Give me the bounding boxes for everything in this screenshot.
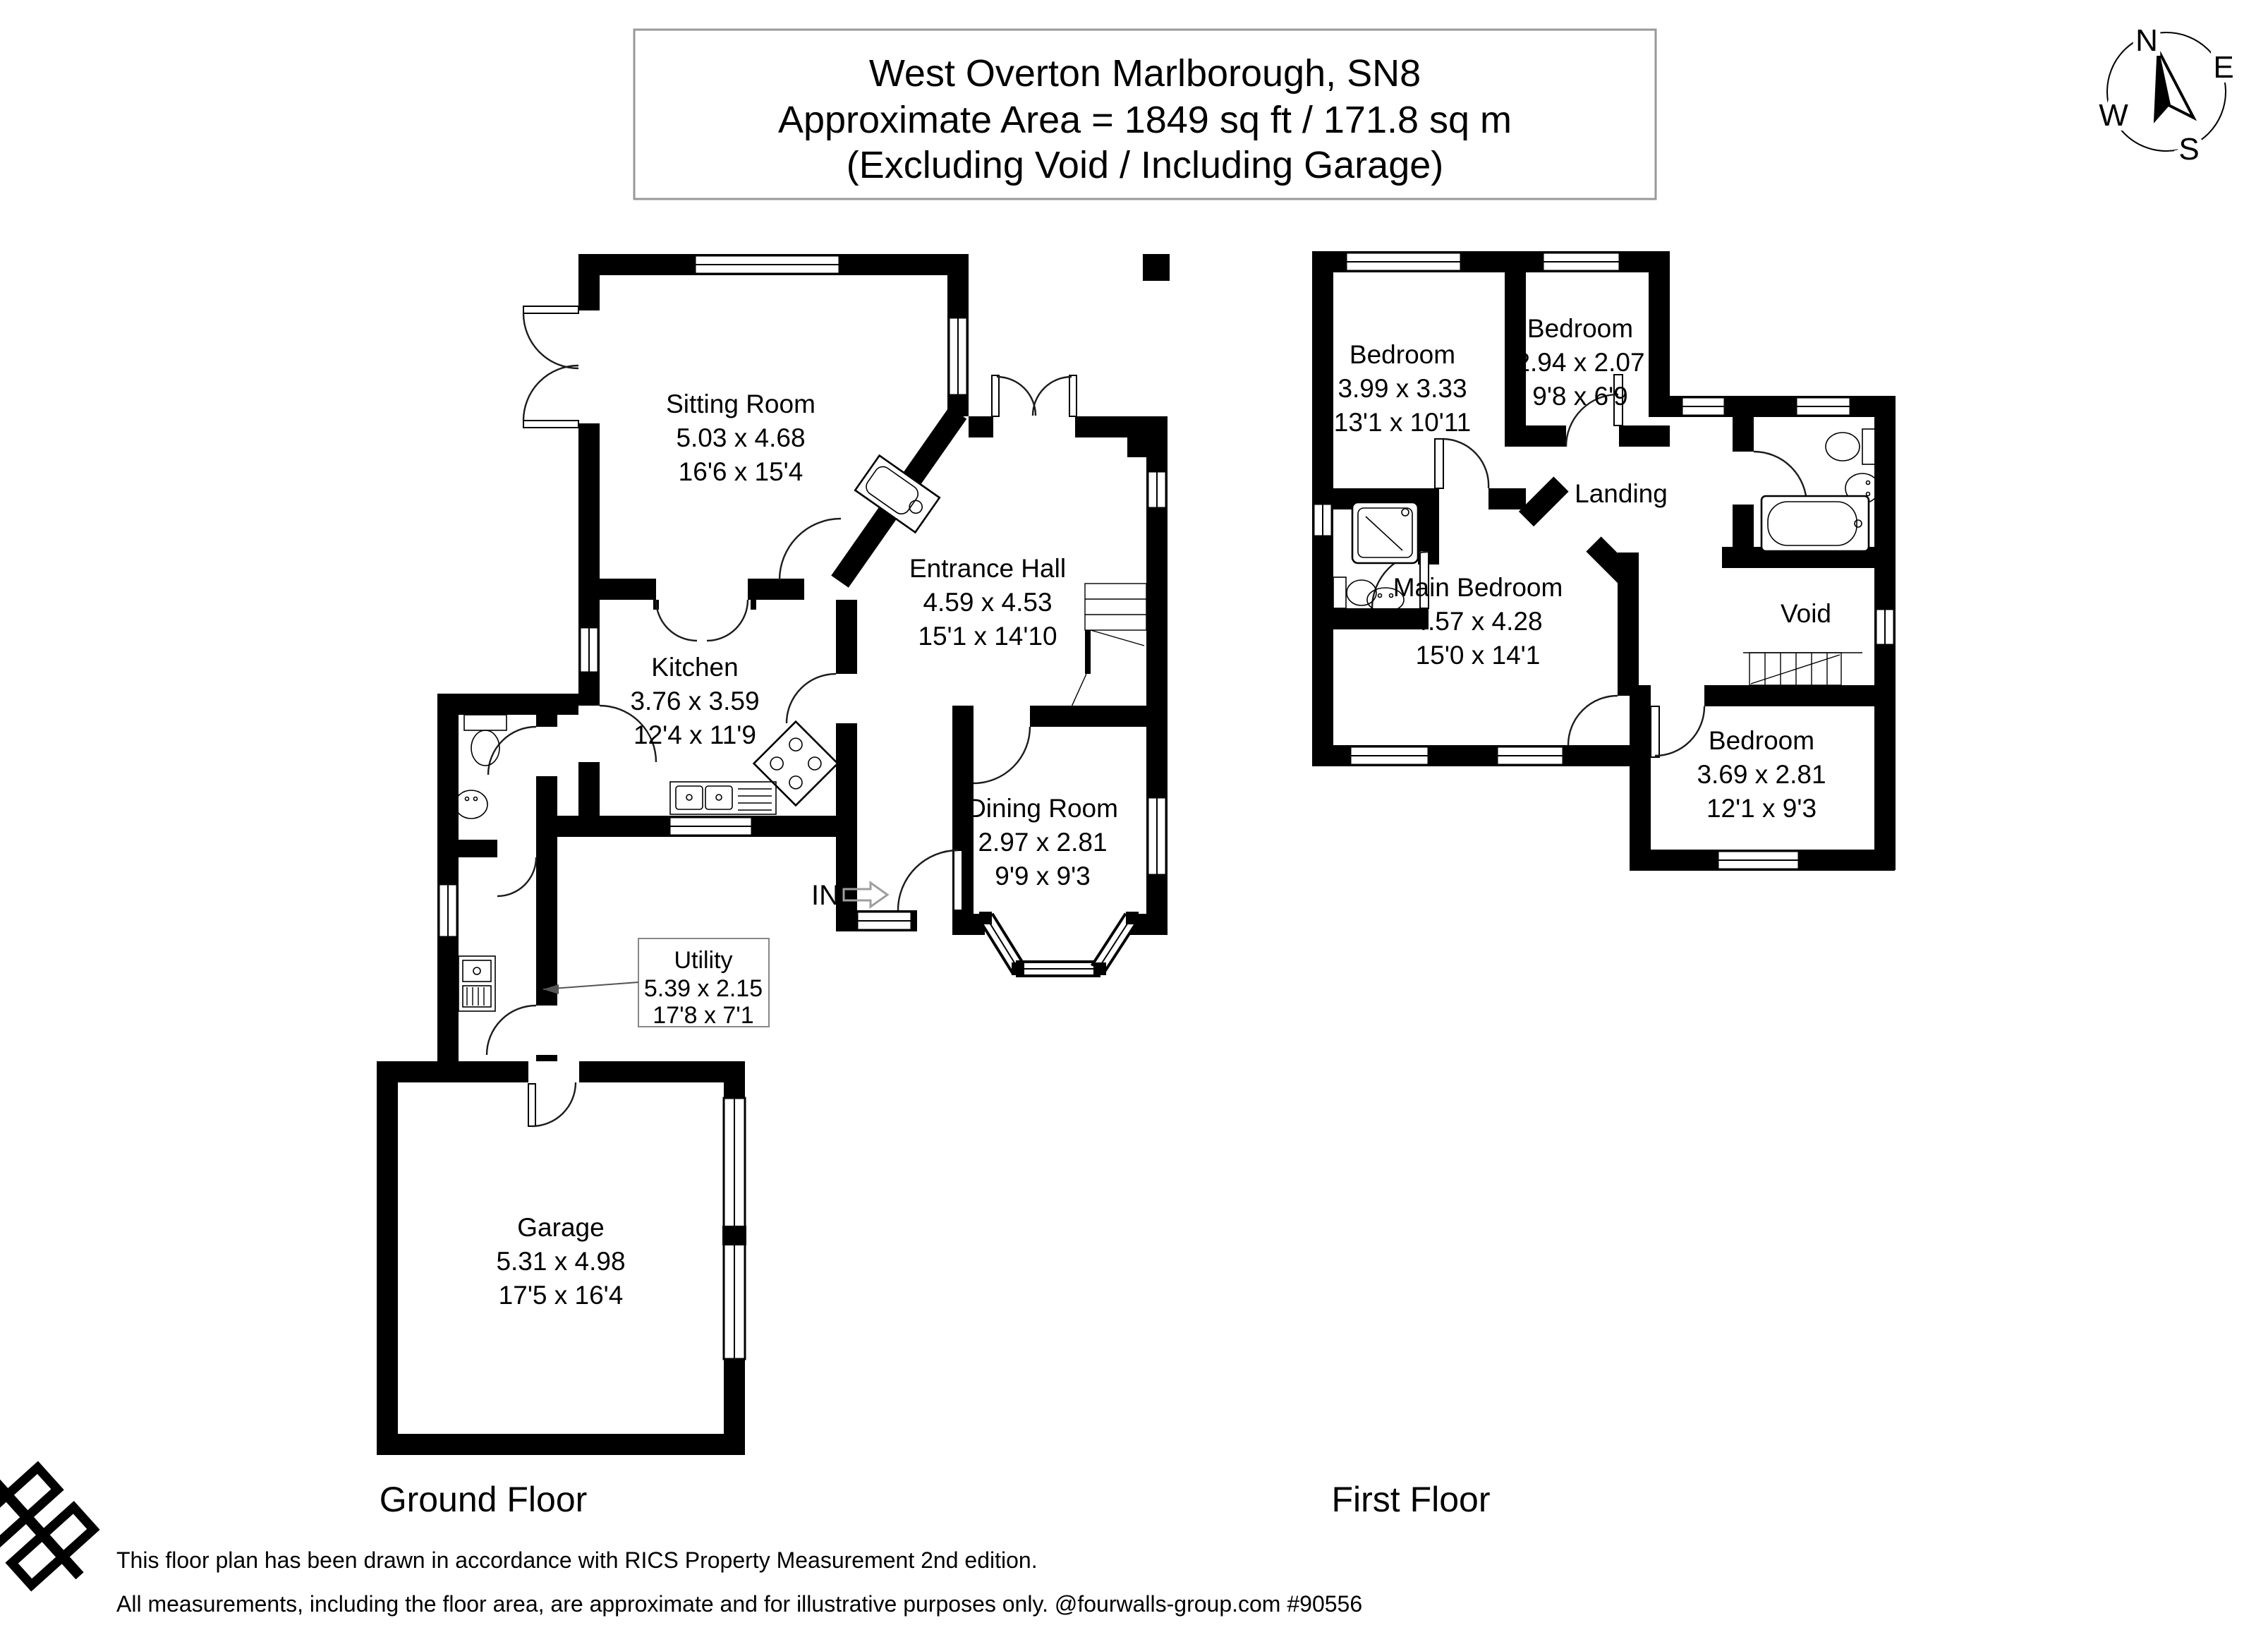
ground-floor-label: Ground Floor xyxy=(380,1480,588,1519)
room-imperial: 17'5 x 16'4 xyxy=(499,1281,624,1310)
room-label-main-bedroom: Main Bedroom 4.57 x 4.28 15'0 x 14'1 xyxy=(1393,573,1563,670)
title-note: (Excluding Void / Including Garage) xyxy=(847,144,1444,186)
window xyxy=(949,318,967,395)
compass-e: E xyxy=(2213,50,2233,85)
door-arc xyxy=(523,313,578,368)
window xyxy=(1346,253,1461,271)
room-name: Entrance Hall xyxy=(909,554,1066,583)
room-label-landing: Landing xyxy=(1575,479,1668,508)
door-arc xyxy=(523,366,578,421)
title-area: Approximate Area = 1849 sq ft / 171.8 sq… xyxy=(778,99,1512,141)
room-name: Kitchen xyxy=(651,653,738,682)
ground-floor-plan: Sitting Room 5.03 x 4.68 16'6 x 15'4 Ent… xyxy=(377,254,1170,1519)
shower-icon xyxy=(1352,502,1418,563)
room-label-entrance-hall: Entrance Hall 4.59 x 4.53 15'1 x 14'10 xyxy=(909,554,1066,651)
door-arc xyxy=(656,600,697,641)
room-metric: 5.39 x 2.15 xyxy=(644,975,763,1002)
room-metric: 3.76 x 3.59 xyxy=(630,687,759,716)
door-arc xyxy=(1655,706,1704,756)
door-arc xyxy=(497,857,536,896)
footer: This floor plan has been drawn in accord… xyxy=(0,1455,1362,1617)
door-arc xyxy=(1443,439,1488,488)
room-label-garage: Garage 5.31 x 4.98 17'5 x 16'4 xyxy=(496,1213,625,1310)
room-metric: 5.31 x 4.98 xyxy=(496,1247,625,1276)
entry-door-leaf xyxy=(1069,375,1077,416)
window xyxy=(1876,609,1894,645)
room-name: Dining Room xyxy=(967,794,1118,823)
in-label: IN xyxy=(811,880,839,911)
room-imperial: 12'1 x 9'3 xyxy=(1706,794,1817,823)
room-label-bedroom-1: Bedroom 3.99 x 3.33 13'1 x 10'11 xyxy=(1334,340,1472,437)
first-floor-label: First Floor xyxy=(1332,1480,1491,1519)
room-name: Main Bedroom xyxy=(1393,573,1563,602)
room-label-bedroom-3: Bedroom 3.69 x 2.81 12'1 x 9'3 xyxy=(1697,726,1826,823)
door-arc xyxy=(487,1006,536,1055)
title-box: West Overton Marlborough, SN8 Approximat… xyxy=(634,30,1656,199)
french-door-leaf xyxy=(523,306,578,313)
room-label-void: Void xyxy=(1781,599,1831,628)
compass: N E W S xyxy=(2099,23,2233,167)
room-label-bedroom-2: Bedroom 2.94 x 2.07 9'8 x 6'9 xyxy=(1515,314,1644,411)
room-imperial: 17'8 x 7'1 xyxy=(653,1002,753,1029)
staircase xyxy=(1069,584,1146,711)
basin-icon xyxy=(455,790,487,819)
door-leaf xyxy=(1651,706,1659,757)
hob-icon xyxy=(754,722,838,806)
room-imperial: 16'6 x 15'4 xyxy=(679,457,803,486)
room-imperial: 15'1 x 14'10 xyxy=(918,622,1057,651)
window xyxy=(1148,471,1166,508)
window xyxy=(857,912,911,930)
window xyxy=(439,884,457,937)
room-name: Bedroom xyxy=(1527,314,1633,343)
in-door-leaf xyxy=(954,850,962,910)
door-arc xyxy=(1033,377,1072,416)
door-arc xyxy=(532,1082,576,1126)
room-metric: 5.03 x 4.68 xyxy=(676,423,805,452)
room-label-kitchen: Kitchen 3.76 x 3.59 12'4 x 11'9 xyxy=(630,653,759,749)
room-name: Bedroom xyxy=(1350,340,1455,369)
window xyxy=(580,627,598,672)
room-name: Utility xyxy=(674,947,732,974)
window xyxy=(1350,747,1429,765)
fourwalls-logo-icon xyxy=(0,1455,111,1604)
compass-n: N xyxy=(2135,23,2158,58)
door-arc xyxy=(780,519,841,580)
window xyxy=(1796,397,1850,416)
toilet-icon xyxy=(1826,429,1881,464)
window xyxy=(1148,797,1166,875)
room-imperial: 9'8 x 6'9 xyxy=(1532,382,1628,411)
door-arc xyxy=(488,727,536,775)
room-metric: 3.99 x 3.33 xyxy=(1338,374,1467,403)
window xyxy=(1543,253,1620,271)
floorplan-canvas: West Overton Marlborough, SN8 Approximat… xyxy=(0,0,2268,1630)
room-metric: 3.69 x 2.81 xyxy=(1697,760,1826,789)
door-arc xyxy=(974,727,1030,783)
room-metric: 2.97 x 2.81 xyxy=(978,828,1107,857)
door-arc xyxy=(787,674,836,723)
toilet-icon xyxy=(464,715,507,766)
entry-door-leaf xyxy=(992,375,999,416)
bay-window xyxy=(979,912,1139,975)
room-imperial: 9'9 x 9'3 xyxy=(995,862,1091,891)
room-label-sitting-room: Sitting Room 5.03 x 4.68 16'6 x 15'4 xyxy=(666,390,815,486)
bathtub-icon xyxy=(1761,496,1869,551)
window xyxy=(1718,851,1799,869)
garage-door xyxy=(722,1098,746,1359)
utility-sink-icon xyxy=(459,956,495,1011)
door-arc xyxy=(997,377,1036,416)
room-metric: 4.59 x 4.53 xyxy=(923,588,1052,617)
room-metric: 4.57 x 4.28 xyxy=(1413,607,1542,636)
chimney-block xyxy=(1143,254,1170,281)
door-leaf xyxy=(1435,439,1443,488)
room-name: Bedroom xyxy=(1709,726,1814,755)
compass-w: W xyxy=(2099,98,2128,133)
garage-door-leaf xyxy=(528,1084,535,1126)
window xyxy=(1682,397,1725,416)
title-address: West Overton Marlborough, SN8 xyxy=(869,52,1421,95)
window xyxy=(695,255,839,274)
room-imperial: 13'1 x 10'11 xyxy=(1334,408,1472,437)
room-label-utility: Utility 5.39 x 2.15 17'8 x 7'1 xyxy=(543,938,769,1029)
kitchen-sink-icon xyxy=(670,782,776,814)
door-arc xyxy=(898,850,958,910)
room-name: Garage xyxy=(517,1213,604,1242)
room-imperial: 12'4 x 11'9 xyxy=(633,720,756,749)
room-label-dining-room: Dining Room 2.97 x 2.81 9'9 x 9'3 xyxy=(967,794,1118,891)
room-imperial: 15'0 x 14'1 xyxy=(1416,641,1541,670)
door-arc xyxy=(1568,696,1618,745)
first-floor-plan: Bedroom 3.99 x 3.33 13'1 x 10'11 Bedroom… xyxy=(1312,251,1896,1519)
window xyxy=(669,817,752,835)
footer-rics-note: This floor plan has been drawn in accord… xyxy=(116,1547,1038,1573)
void-stairs xyxy=(1743,653,1862,685)
footer-disclaimer: All measurements, including the floor ar… xyxy=(116,1591,1362,1617)
door-arc xyxy=(707,600,748,641)
room-name: Sitting Room xyxy=(666,390,815,418)
window xyxy=(1497,747,1563,765)
window xyxy=(1314,504,1332,536)
compass-s: S xyxy=(2178,132,2199,167)
french-door-leaf xyxy=(523,421,578,428)
room-metric: 2.94 x 2.07 xyxy=(1515,348,1644,377)
